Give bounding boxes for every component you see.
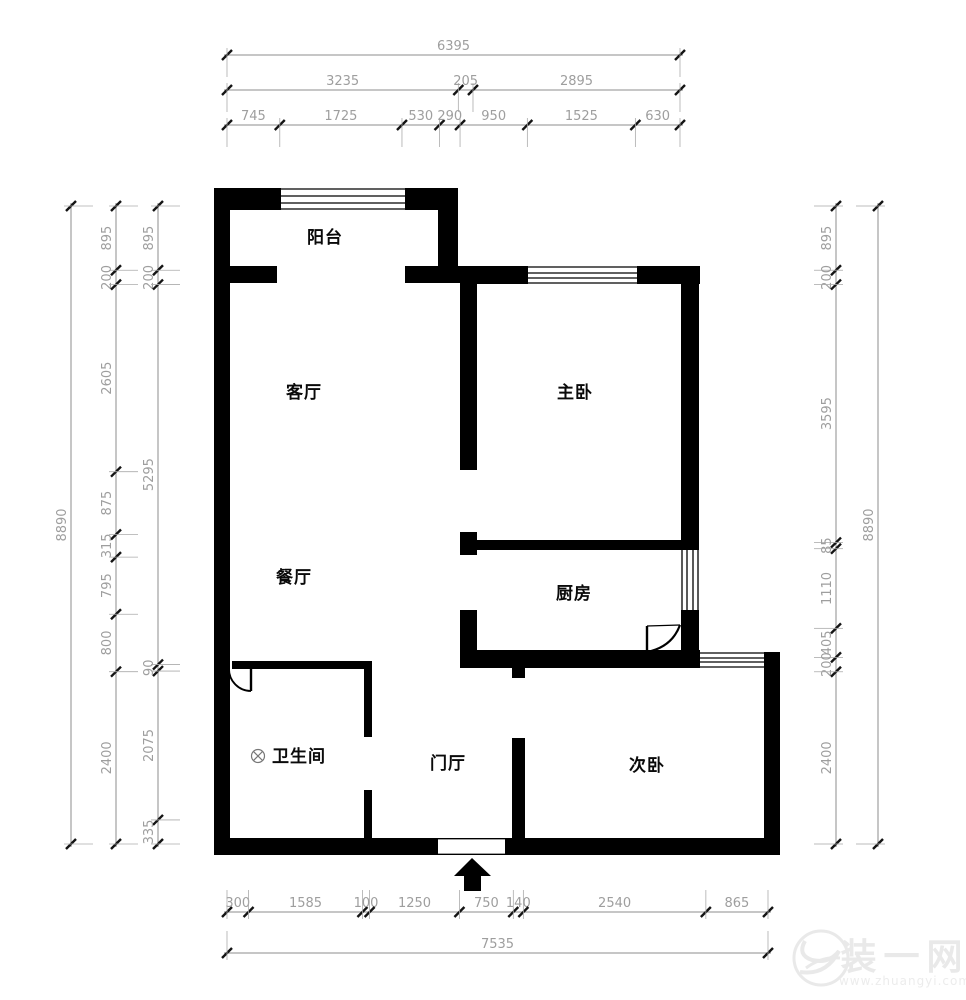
dimension-label: 315 [100, 533, 115, 558]
wall-balcony-top-left [214, 188, 281, 210]
entrance-arrow-icon [454, 858, 491, 891]
room-label-master-bedroom: 主卧 [557, 382, 593, 403]
dimension-label: 2605 [100, 362, 115, 395]
window-second-bedroom [700, 652, 764, 668]
dimension-label: 335 [142, 820, 157, 845]
room-label-bathroom: 卫生间 [272, 746, 326, 767]
window-master-bedroom [528, 266, 637, 284]
dimension-annotations: 6395323520528957451725530290950152563030… [55, 39, 885, 960]
dimension-label: 200 [100, 265, 115, 290]
wall-bathroom-right-lower [364, 790, 372, 838]
dimension-label: 3235 [326, 74, 359, 89]
dimension-label: 800 [100, 631, 115, 656]
dimension-label: 1250 [398, 896, 431, 911]
wall-master-top-right [637, 266, 700, 284]
dimension-label: 5295 [142, 458, 157, 491]
dimension-label: 100 [354, 896, 379, 911]
wall-left-outer [214, 188, 230, 855]
dimension-label: 895 [100, 226, 115, 251]
wall-middle-upper [460, 266, 477, 470]
dimension-label: 530 [408, 109, 433, 124]
dimension-label: 630 [645, 109, 670, 124]
dimension-label: 1525 [565, 109, 598, 124]
watermark: 装一网 www.zhuangyi.com [794, 931, 966, 988]
wall-second-bedroom-left-stub [512, 663, 525, 678]
wall-balcony-divider-right [405, 266, 460, 283]
wall-kitchen-bottom [460, 650, 700, 668]
dimension-label: 875 [100, 491, 115, 516]
wall-bathroom-right-upper [364, 661, 372, 737]
door-swing-kitchen [647, 625, 680, 652]
dimension-label: 300 [225, 896, 250, 911]
dimension-label: 205 [453, 74, 478, 89]
floor-plan-page: 6395323520528957451725530290950152563030… [0, 0, 966, 1000]
dimension-label: 2400 [820, 741, 835, 774]
room-label-second-bedroom: 次卧 [629, 755, 665, 776]
room-label-entry-hall: 门厅 [430, 753, 466, 774]
wall-second-bedroom-right [764, 652, 780, 855]
room-label-dining-room: 餐厅 [276, 567, 312, 588]
dimension-label: 795 [100, 573, 115, 598]
dimension-label: 290 [437, 109, 462, 124]
dimension-label: 950 [481, 109, 506, 124]
wall-middle-mid [460, 532, 477, 555]
wall-balcony-right [438, 204, 458, 268]
dimension-label: 200 [820, 265, 835, 290]
dimension-label: 405 [820, 630, 835, 655]
dimension-label: 200 [142, 265, 157, 290]
dimension-label: 6395 [437, 39, 470, 54]
dimension-label: 745 [241, 109, 266, 124]
door-swing-bathroom [229, 669, 251, 691]
dimension-label: 1725 [324, 109, 357, 124]
wall-master-kitchen [477, 540, 681, 550]
floor-plan-svg: 6395323520528957451725530290950152563030… [0, 0, 966, 1000]
dimension-label: 8890 [862, 508, 877, 541]
dimension-label: 2895 [560, 74, 593, 89]
wall-bathroom-top [232, 661, 372, 669]
dimension-label: 3595 [820, 397, 835, 430]
dimension-label: 200 [820, 652, 835, 677]
entrance-threshold [438, 838, 505, 855]
dimension-label: 2400 [100, 741, 115, 774]
window-kitchen [681, 550, 699, 610]
watermark-url: www.zhuangyi.com [839, 974, 966, 988]
dimension-label: 1110 [820, 572, 835, 605]
window-balcony [281, 188, 405, 210]
dimension-label: 2075 [142, 729, 157, 762]
watermark-brand: 装一网 [840, 937, 966, 978]
floor-drain-icon [252, 750, 265, 763]
room-label-living-room: 客厅 [285, 382, 322, 403]
wall-right-upper [681, 266, 699, 550]
room-label-kitchen: 厨房 [556, 583, 592, 604]
wall-second-bedroom-left [512, 738, 525, 838]
room-label-balcony: 阳台 [307, 227, 343, 248]
dimension-label: 2540 [598, 896, 631, 911]
dimension-label: 895 [142, 226, 157, 251]
dimension-label: 7535 [481, 937, 514, 952]
wall-balcony-divider-left [228, 266, 277, 283]
dimension-label: 865 [725, 896, 750, 911]
dimension-label: 750 [474, 896, 499, 911]
dimension-label: 8890 [55, 508, 70, 541]
dimension-label: 895 [820, 226, 835, 251]
dimension-label: 1585 [289, 896, 322, 911]
